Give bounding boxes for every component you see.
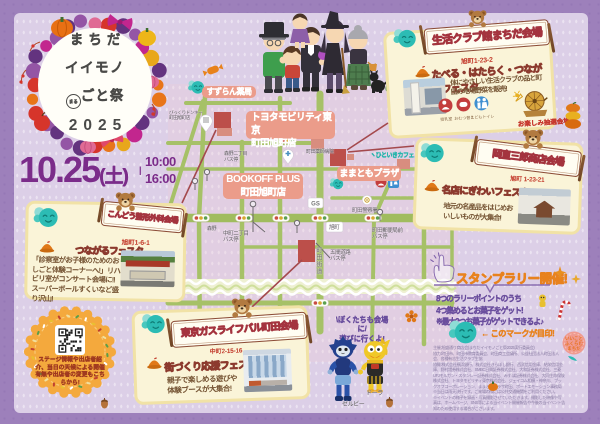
svg-text:まちだ: まちだ	[567, 345, 581, 352]
